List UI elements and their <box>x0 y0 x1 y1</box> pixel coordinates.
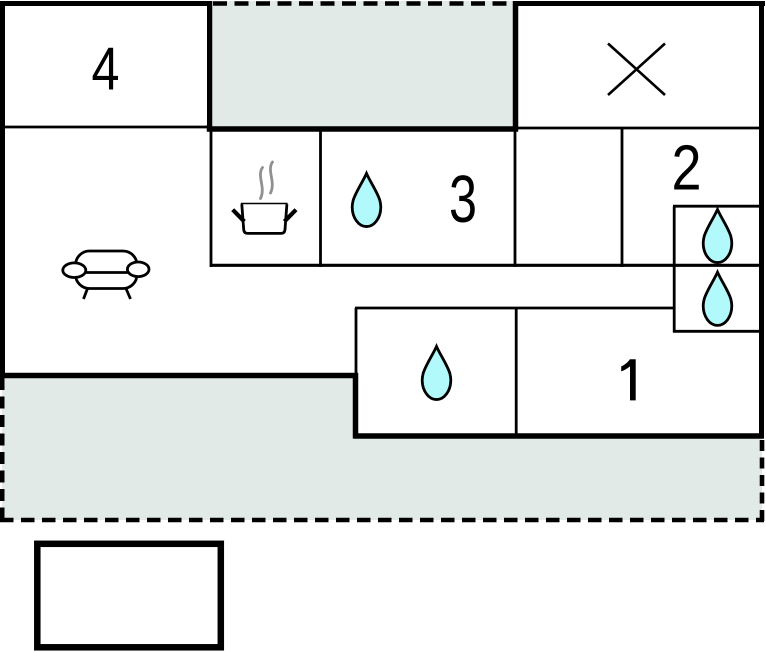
svg-text:4: 4 <box>92 36 120 103</box>
svg-text:2: 2 <box>672 132 702 204</box>
svg-text:3: 3 <box>449 162 477 237</box>
